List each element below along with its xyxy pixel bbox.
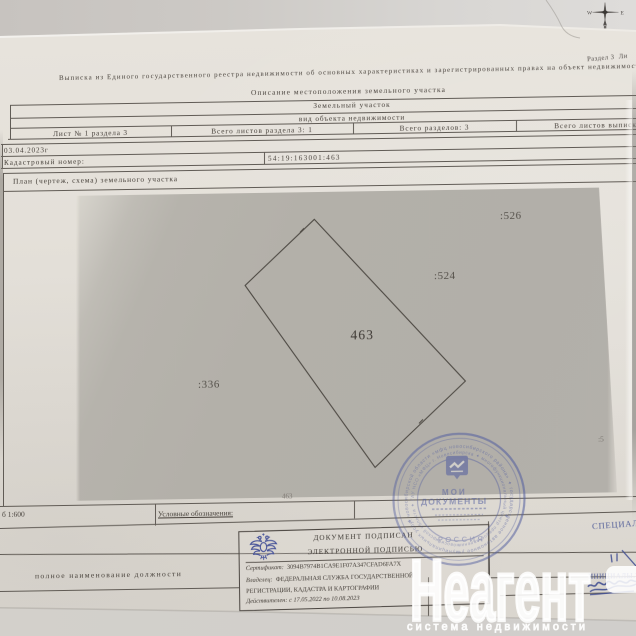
svg-text:W: W: [587, 11, 593, 17]
svg-text:✦: ✦: [407, 519, 412, 526]
svg-text:ДОКУМЕНТЫ: ДОКУМЕНТЫ: [421, 496, 487, 507]
svg-text:E: E: [621, 11, 625, 17]
svg-text:✦: ✦: [504, 513, 509, 520]
